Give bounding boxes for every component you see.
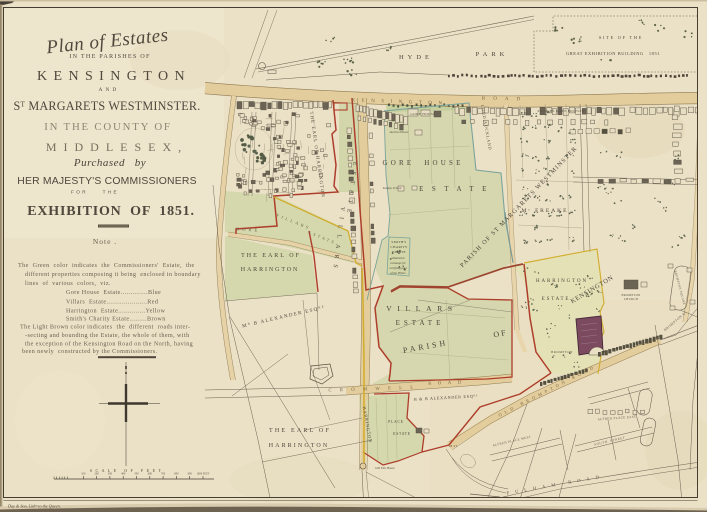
svg-text:PARK: PARK [476, 51, 509, 58]
svg-text:THE EARL OF: THE EARL OF [269, 428, 331, 434]
svg-text:BROMPTON: BROMPTON [551, 350, 573, 354]
svg-text:the exception of the Kensingto: the exception of the Kensington Road on … [25, 341, 193, 348]
svg-text:ESTATE: ESTATE [392, 250, 406, 254]
svg-text:HARRINGTON: HARRINGTON [269, 443, 330, 449]
svg-text:GREAT EXHIBITION BUILDING 18: GREAT EXHIBITION BUILDING 1851 [566, 51, 660, 56]
svg-text:ESTATE: ESTATE [542, 297, 570, 302]
svg-text:The Green color indicates: The Green color indicates the Commission… [18, 263, 195, 269]
svg-text:PLACE: PLACE [388, 420, 403, 424]
svg-text:HYDE: HYDE [399, 54, 433, 61]
svg-text:SMITH'S: SMITH'S [391, 240, 406, 244]
svg-text:FOR THE: FOR THE [71, 190, 119, 195]
svg-text:different properties composing: different properties composing it being … [25, 271, 201, 278]
svg-text:HARRINGTON: HARRINGTON [536, 279, 588, 284]
svg-text:18 27: 18 27 [448, 444, 457, 448]
svg-text:Villars Estate...............: Villars Estate.....................Red [66, 300, 158, 306]
svg-text:GORE HOUSE: GORE HOUSE [410, 112, 435, 116]
svg-text:lines of various colors, v: lines of various colors, viz. [25, 280, 111, 287]
svg-text:Sᵀ MARGARETS WESTMINSTER.: Sᵀ MARGARETS WESTMINSTER. [14, 99, 201, 113]
svg-text:EXHIBITION OF 1851.: EXHIBITION OF 1851. [27, 204, 195, 219]
svg-text:IN THE PARISHES OF: IN THE PARISHES OF [69, 53, 150, 60]
svg-text:900: 900 [188, 473, 193, 476]
svg-text:AND: AND [99, 87, 120, 93]
svg-text:S C A L E O F F E E T: S C A L E O F F E E T [90, 468, 163, 473]
svg-text:-secting and bounding the Esta: -secting and bounding the Estate, the wh… [25, 332, 190, 339]
svg-text:800: 800 [174, 473, 179, 476]
svg-text:GORE HOUSE: GORE HOUSE [382, 159, 463, 167]
svg-text:PRINCES GATE HOUSES: PRINCES GATE HOUSES [538, 109, 585, 113]
svg-text:VILLARS: VILLARS [386, 304, 458, 313]
svg-text:CHARITY: CHARITY [390, 245, 407, 249]
svg-text:Sunday School: Sunday School [383, 186, 402, 190]
svg-text:ESTATE: ESTATE [396, 319, 445, 327]
svg-text:CHURCH: CHURCH [624, 297, 639, 301]
svg-text:Mᶜ FREAKE: Mᶜ FREAKE [521, 208, 568, 214]
svg-text:KENSINGTON: KENSINGTON [37, 69, 191, 84]
svg-text:rectifying part: rectifying part [389, 266, 406, 270]
svg-text:obtained in: obtained in [391, 256, 405, 260]
svg-text:SITE OF THE: SITE OF THE [599, 35, 643, 40]
svg-text:exchange for: exchange for [390, 261, 406, 265]
svg-text:Harrington Estate............: Harrington Estate..............Yellow [66, 309, 165, 315]
svg-text:IN THE COUNTY OF: IN THE COUNTY OF [44, 121, 171, 133]
svg-text:Purchased by: Purchased by [73, 157, 146, 169]
svg-text:ESTATE: ESTATE [419, 185, 495, 193]
svg-text:Old Elm House: Old Elm House [375, 466, 395, 470]
svg-text:The Light Brown color indicate: The Light Brown color indicates the diff… [20, 324, 190, 331]
svg-text:HER MAJESTY'S COMMISSIONERS: HER MAJESTY'S COMMISSIONERS [17, 176, 196, 187]
svg-text:been newly constructed by the: been newly constructed by the Commission… [22, 349, 158, 355]
svg-text:of the Villars: of the Villars [390, 271, 406, 275]
svg-text:Smith's Charity Estate........: Smith's Charity Estate.........Brown [66, 317, 166, 323]
svg-text:100: 100 [81, 473, 86, 476]
svg-text:THE EARL OF: THE EARL OF [241, 253, 301, 259]
svg-text:HARRINGTON: HARRINGTON [241, 267, 300, 273]
svg-text:ESTATE: ESTATE [393, 432, 411, 436]
svg-text:ROAD: ROAD [482, 97, 528, 103]
svg-text:Note .: Note . [93, 237, 117, 246]
svg-text:MIDDLESEX,: MIDDLESEX, [46, 140, 188, 154]
svg-text:Gore House Estate............: Gore House Estate..............Blue [66, 290, 161, 296]
svg-text:Auction House: Auction House [389, 130, 409, 134]
svg-text:1000 FEET: 1000 FEET [197, 473, 210, 476]
